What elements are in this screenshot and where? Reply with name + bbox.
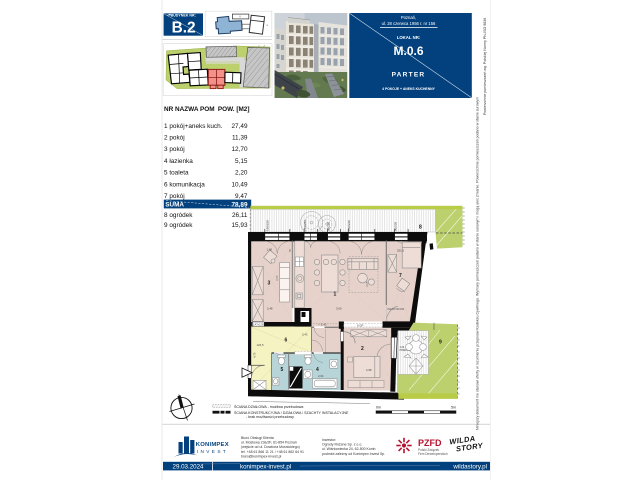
svg-text:4: 4 xyxy=(316,367,319,373)
svg-text:3: 3 xyxy=(268,281,271,287)
svg-text:26,11: 26,11 xyxy=(232,212,248,219)
svg-text:Powierzchnie pomieszczeń wg. P: Powierzchnie pomieszczeń wg. Polskiej No… xyxy=(483,18,487,115)
svg-text:78,89: 78,89 xyxy=(232,202,248,209)
svg-text:126,5: 126,5 xyxy=(257,343,264,347)
svg-text:B.2: B.2 xyxy=(172,20,196,37)
svg-text:12,70: 12,70 xyxy=(232,146,248,153)
svg-text:90/220: 90/220 xyxy=(327,221,331,231)
svg-text:tel. +48 61 866 11 21 / +48 61: tel. +48 61 866 11 21 / +48 61 862 64 91 xyxy=(241,450,304,454)
svg-text:6 komunikacja: 6 komunikacja xyxy=(164,181,205,188)
svg-text:3,05: 3,05 xyxy=(365,281,369,287)
svg-text:ŚCIANA DZIAŁOWA - możliwa prze: ŚCIANA DZIAŁOWA - możliwa przebudowa xyxy=(234,404,303,409)
svg-text:7: 7 xyxy=(399,273,402,279)
svg-text:Poznań,: Poznań, xyxy=(401,15,416,20)
svg-text:3 pokój: 3 pokój xyxy=(164,146,185,153)
svg-text:ul. 28 czerwca 1956 r. nr 156: ul. 28 czerwca 1956 r. nr 156 xyxy=(382,21,436,26)
svg-text:INVEST: INVEST xyxy=(197,449,228,454)
svg-text:150/220: 150/220 xyxy=(303,220,307,231)
svg-text:11,39: 11,39 xyxy=(232,135,248,142)
svg-text:2 pokój: 2 pokój xyxy=(164,135,185,142)
svg-text:POW. [M2]: POW. [M2] xyxy=(218,106,250,113)
svg-text:wildastory.pl: wildastory.pl xyxy=(452,463,487,470)
svg-text:6: 6 xyxy=(285,338,288,344)
svg-text:konimpex-invest.pl: konimpex-invest.pl xyxy=(240,463,291,470)
svg-text:1,47x2,05: 1,47x2,05 xyxy=(253,323,265,327)
svg-text:150/220: 150/220 xyxy=(347,220,351,231)
svg-text:9,47: 9,47 xyxy=(235,193,248,200)
svg-text:podmiot zależny od Konimpex In: podmiot zależny od Konimpex Invest Sp. xyxy=(322,452,385,456)
svg-text:27,49: 27,49 xyxy=(232,123,248,130)
svg-text:Ogrody Różane Sp. z o.o.: Ogrody Różane Sp. z o.o. xyxy=(322,443,362,447)
svg-text:2,20: 2,20 xyxy=(235,170,248,177)
svg-text:80/209 90/199: 80/209 90/199 xyxy=(388,307,405,311)
svg-text:Niniejszy dokument nie stanowi: Niniejszy dokument nie stanowi oferty w … xyxy=(476,97,480,430)
svg-text:Inwestor:: Inwestor: xyxy=(322,438,336,442)
svg-text:29.03.2024: 29.03.2024 xyxy=(173,463,205,470)
svg-text:8 ogródek: 8 ogródek xyxy=(164,212,193,219)
svg-text:150/220: 150/220 xyxy=(266,220,270,231)
svg-text:2: 2 xyxy=(361,346,364,352)
svg-text:PARTER: PARTER xyxy=(392,71,426,78)
svg-text:~ 3,43: ~ 3,43 xyxy=(318,323,327,327)
svg-text:0m: 0m xyxy=(376,406,381,410)
svg-text:Biuro Obsługi Klienta: Biuro Obsługi Klienta xyxy=(241,436,274,440)
svg-text:3,05: 3,05 xyxy=(275,275,279,281)
svg-text:4 łazienka: 4 łazienka xyxy=(164,158,193,165)
svg-text:9: 9 xyxy=(439,340,442,346)
svg-text:4,75: 4,75 xyxy=(252,352,256,358)
svg-text:3,60: 3,60 xyxy=(336,307,342,311)
svg-text:5: 5 xyxy=(281,367,284,373)
svg-text:KONIMPEX: KONIMPEX xyxy=(196,442,229,448)
svg-text:50: 50 xyxy=(288,248,292,252)
svg-text:M.0.6: M.0.6 xyxy=(393,44,423,58)
svg-text:10,49: 10,49 xyxy=(232,181,248,188)
svg-text:15,93: 15,93 xyxy=(232,222,248,229)
svg-text:NR NAZWA POM: NR NAZWA POM xyxy=(164,106,215,113)
svg-text:BUDYNEK NR:: BUDYNEK NR: xyxy=(171,14,196,18)
svg-text:SUMA: SUMA xyxy=(165,202,184,209)
svg-text:1,48: 1,48 xyxy=(267,248,273,252)
svg-text:4 POKOJE + ANEKS KUCHENNY: 4 POKOJE + ANEKS KUCHENNY xyxy=(382,87,435,91)
svg-text:90/220: 90/220 xyxy=(394,221,398,231)
svg-text:biuro@konimpex-invest.pl: biuro@konimpex-invest.pl xyxy=(241,454,282,458)
svg-text:3,43: 3,43 xyxy=(302,333,308,337)
svg-text:8: 8 xyxy=(419,225,422,231)
svg-text:1 pokój+aneks kuch.: 1 pokój+aneks kuch. xyxy=(164,123,223,130)
svg-text:7 pokój: 7 pokój xyxy=(164,193,185,200)
svg-text:5,15: 5,15 xyxy=(235,158,248,165)
svg-text:9 GP: 9 GP xyxy=(357,324,364,328)
svg-text:2,98: 2,98 xyxy=(366,368,372,372)
svg-text:5m: 5m xyxy=(451,406,456,410)
svg-text:ul. Mostowa 23a/2F, 61-854 Poz: ul. Mostowa 23a/2F, 61-854 Poznań xyxy=(241,441,297,445)
svg-text:- brak możliwości przebudowy: - brak możliwości przebudowy xyxy=(246,415,294,419)
svg-text:2,48: 2,48 xyxy=(267,307,273,311)
svg-text:5 toaleta: 5 toaleta xyxy=(164,170,189,177)
svg-text:2,04: 2,04 xyxy=(318,374,324,378)
svg-text:ul. Wiśniowiecka 24, 62-500 Ko: ul. Wiśniowiecka 24, 62-500 Konin xyxy=(322,447,376,451)
svg-text:PZFD: PZFD xyxy=(418,438,442,448)
svg-text:Firm Deweloperskich: Firm Deweloperskich xyxy=(418,452,448,456)
svg-text:(wejście od ul. Dowbora Muśnic: (wejście od ul. Dowbora Muśnickiego) xyxy=(241,445,300,449)
svg-text:9 ogródek: 9 ogródek xyxy=(164,222,193,229)
svg-text:251,5: 251,5 xyxy=(397,249,404,253)
svg-text:1: 1 xyxy=(334,292,337,298)
svg-text:LOKAL NR:: LOKAL NR: xyxy=(397,35,421,40)
